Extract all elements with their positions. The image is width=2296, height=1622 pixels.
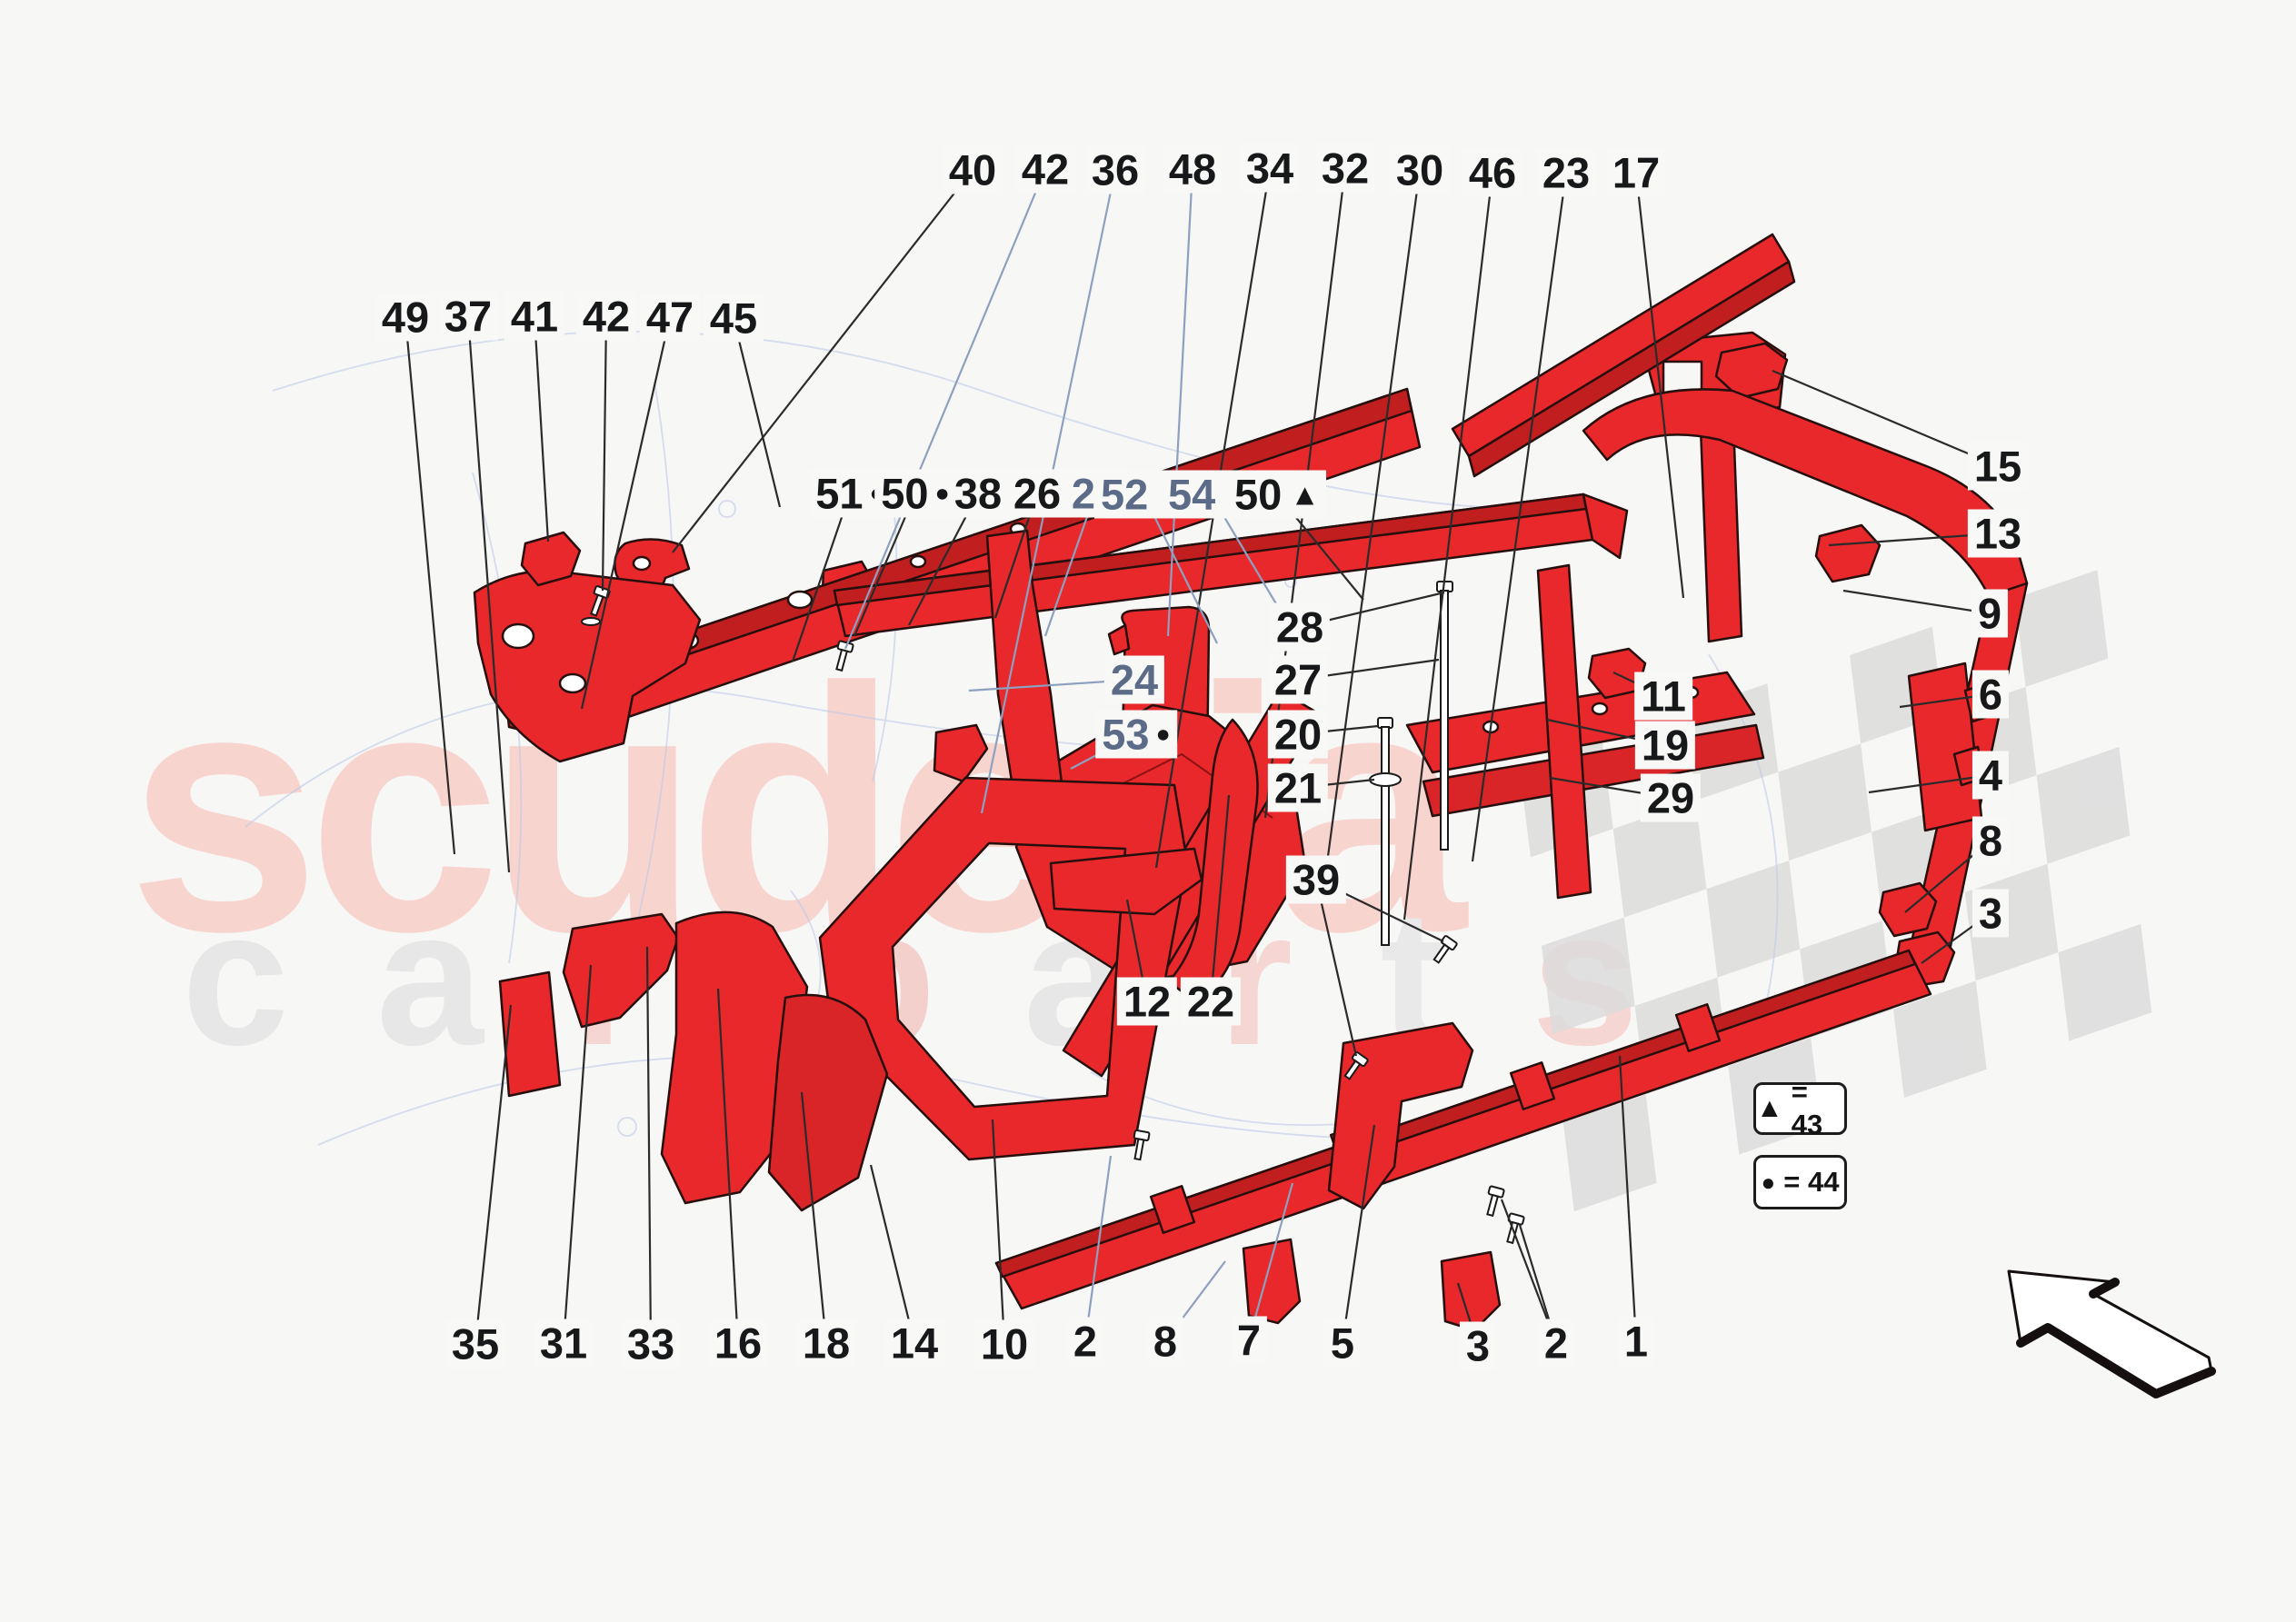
part-label-46: 46 xyxy=(1462,149,1522,197)
part-number: 27 xyxy=(1274,659,1322,702)
part-number: 9 xyxy=(1978,592,2002,635)
part-label-36: 36 xyxy=(1085,146,1145,194)
part-number: 21 xyxy=(1274,767,1322,810)
part-label-32: 32 xyxy=(1315,144,1375,193)
part-label-31: 31 xyxy=(534,1319,594,1368)
legend-triangle-text: = 43 xyxy=(1792,1076,1844,1141)
part-label-23: 23 xyxy=(1536,149,1596,197)
part-number: 20 xyxy=(1274,713,1322,756)
part-number: 36 xyxy=(1092,149,1139,192)
part-label-13: 13 xyxy=(1968,510,2028,558)
part-label-7: 7 xyxy=(1231,1317,1267,1365)
part-number: 50 xyxy=(1234,473,1282,516)
part-number: 10 xyxy=(981,1323,1028,1366)
part-label-53: 53● xyxy=(1095,711,1177,759)
part-label-8-right: 8 xyxy=(1972,817,2009,865)
part-label-1: 1 xyxy=(1618,1318,1654,1366)
part-number: 46 xyxy=(1469,152,1516,194)
part-label-17: 17 xyxy=(1606,149,1666,197)
part-number: 51 xyxy=(815,473,863,515)
part-label-26: 26 xyxy=(1007,470,1067,518)
part-label-5: 5 xyxy=(1324,1319,1361,1368)
part-label-34: 34 xyxy=(1240,144,1300,193)
part-number: 35 xyxy=(452,1323,499,1366)
part-number: 12 xyxy=(1123,980,1171,1023)
part-number: 38 xyxy=(954,473,1002,515)
part-label-49: 49 xyxy=(375,294,435,342)
part-number: 37 xyxy=(444,295,492,338)
part-label-33: 33 xyxy=(621,1320,681,1368)
part-number: 17 xyxy=(1612,152,1660,194)
part-number: 41 xyxy=(511,295,558,338)
part-label-19: 19 xyxy=(1635,721,1695,770)
part-number: 30 xyxy=(1396,149,1443,192)
part-number: 31 xyxy=(540,1322,587,1365)
part-label-14: 14 xyxy=(884,1319,944,1368)
legend-triangle-box: ▲ = 43 xyxy=(1753,1082,1847,1135)
part-number: 2 xyxy=(1073,1320,1097,1363)
part-number: 22 xyxy=(1187,980,1234,1023)
part-number: 8 xyxy=(1979,820,2002,862)
part-label-50-dot: 50● xyxy=(874,470,956,518)
legend-dot-text: = 44 xyxy=(1783,1166,1839,1199)
part-label-39: 39 xyxy=(1286,856,1346,904)
part-number: 28 xyxy=(1276,606,1323,649)
part-label-47: 47 xyxy=(640,294,700,342)
triangle-icon: ▲ xyxy=(1756,1095,1783,1122)
part-number: 50 xyxy=(881,473,928,515)
part-label-2-bottom-right: 2 xyxy=(1538,1319,1574,1368)
part-label-18: 18 xyxy=(796,1319,856,1368)
part-label-4: 4 xyxy=(1972,751,2009,800)
part-label-40: 40 xyxy=(943,146,1003,194)
part-label-38: 38 xyxy=(948,470,1008,518)
dot-icon: ● xyxy=(1762,1170,1776,1194)
part-label-9: 9 xyxy=(1972,590,2008,638)
part-number: 45 xyxy=(710,297,757,340)
triangle-icon: ▲ xyxy=(1290,480,1320,510)
part-number: 13 xyxy=(1974,512,2021,555)
part-label-10: 10 xyxy=(974,1320,1034,1368)
part-number: 34 xyxy=(1246,147,1293,190)
part-label-42-left: 42 xyxy=(576,293,636,341)
part-number: 3 xyxy=(1979,892,2002,935)
part-label-3-bottom: 3 xyxy=(1460,1322,1496,1370)
part-number: 39 xyxy=(1293,859,1340,901)
part-label-37: 37 xyxy=(438,293,498,341)
part-number: 54 xyxy=(1168,473,1215,516)
dot-icon: ● xyxy=(1155,722,1170,747)
part-number: 29 xyxy=(1647,777,1694,820)
part-number: 4 xyxy=(1979,754,2002,797)
callout-labels-layer: 4042364834323046231749374142474551●50●38… xyxy=(0,0,2296,1622)
part-number: 8 xyxy=(1153,1320,1177,1363)
part-label-27: 27 xyxy=(1268,656,1328,704)
part-number: 1 xyxy=(1624,1320,1648,1363)
part-label-30: 30 xyxy=(1390,146,1450,194)
part-number: 18 xyxy=(803,1322,850,1365)
part-label-50-tri: 50▲ xyxy=(1228,471,1326,519)
part-number: 23 xyxy=(1542,152,1590,194)
part-number: 53 xyxy=(1102,713,1149,756)
part-label-15: 15 xyxy=(1968,443,2028,491)
legend-dot-box: ● = 44 xyxy=(1753,1155,1847,1209)
part-label-42-top: 42 xyxy=(1015,145,1075,194)
part-label-22: 22 xyxy=(1181,978,1241,1026)
part-label-11: 11 xyxy=(1634,672,1692,721)
part-number: 48 xyxy=(1169,148,1216,191)
part-label-3-right: 3 xyxy=(1972,890,2009,938)
part-number: 19 xyxy=(1642,724,1689,767)
part-number: 32 xyxy=(1322,147,1369,190)
part-label-48: 48 xyxy=(1163,145,1223,194)
part-number: 47 xyxy=(646,296,694,339)
part-number: 3 xyxy=(1466,1325,1490,1368)
part-number: 33 xyxy=(627,1323,674,1366)
part-number: 7 xyxy=(1237,1319,1261,1362)
part-number: 15 xyxy=(1974,445,2021,488)
part-number: 42 xyxy=(1022,148,1069,191)
part-number: 6 xyxy=(1979,673,2002,716)
part-number: 24 xyxy=(1111,659,1158,702)
part-number: 40 xyxy=(949,149,996,192)
part-label-8-bottom: 8 xyxy=(1147,1318,1183,1366)
part-number: 2 xyxy=(1544,1322,1568,1365)
part-label-20: 20 xyxy=(1268,711,1328,759)
part-number: 16 xyxy=(714,1322,762,1365)
part-number: 42 xyxy=(583,295,630,338)
part-label-35: 35 xyxy=(445,1320,505,1368)
part-label-2-bottom-left: 2 xyxy=(1067,1318,1103,1366)
part-number: 52 xyxy=(1101,473,1148,516)
part-number: 14 xyxy=(891,1322,938,1365)
part-number: 49 xyxy=(382,296,429,339)
part-label-29: 29 xyxy=(1641,774,1701,822)
part-number: 5 xyxy=(1331,1322,1354,1365)
part-number: 26 xyxy=(1013,473,1061,515)
part-label-28: 28 xyxy=(1270,603,1330,652)
part-label-45: 45 xyxy=(704,294,764,343)
part-label-16: 16 xyxy=(708,1319,768,1368)
part-label-41: 41 xyxy=(504,293,564,341)
parts-diagram-canvas: scuderia carparts xyxy=(0,0,2296,1622)
part-label-12: 12 xyxy=(1117,978,1177,1026)
part-label-21: 21 xyxy=(1268,764,1328,812)
part-number: 11 xyxy=(1641,675,1686,718)
part-label-6: 6 xyxy=(1972,671,2009,719)
part-label-24: 24 xyxy=(1104,656,1164,704)
